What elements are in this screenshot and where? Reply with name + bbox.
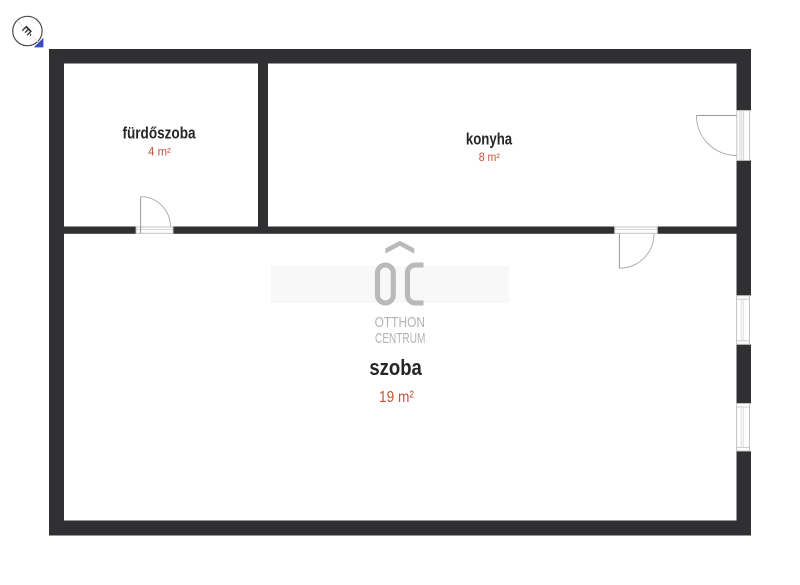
svg-text:CENTRUM: CENTRUM — [375, 331, 425, 347]
svg-text:19 m²: 19 m² — [379, 389, 415, 406]
svg-text:8 m²: 8 m² — [479, 152, 500, 164]
svg-text:4 m²: 4 m² — [148, 147, 171, 159]
svg-text:fürdőszoba: fürdőszoba — [123, 124, 196, 143]
svg-text:OTTHON: OTTHON — [375, 315, 425, 331]
svg-text:szoba: szoba — [369, 355, 422, 380]
svg-text:konyha: konyha — [466, 129, 513, 148]
